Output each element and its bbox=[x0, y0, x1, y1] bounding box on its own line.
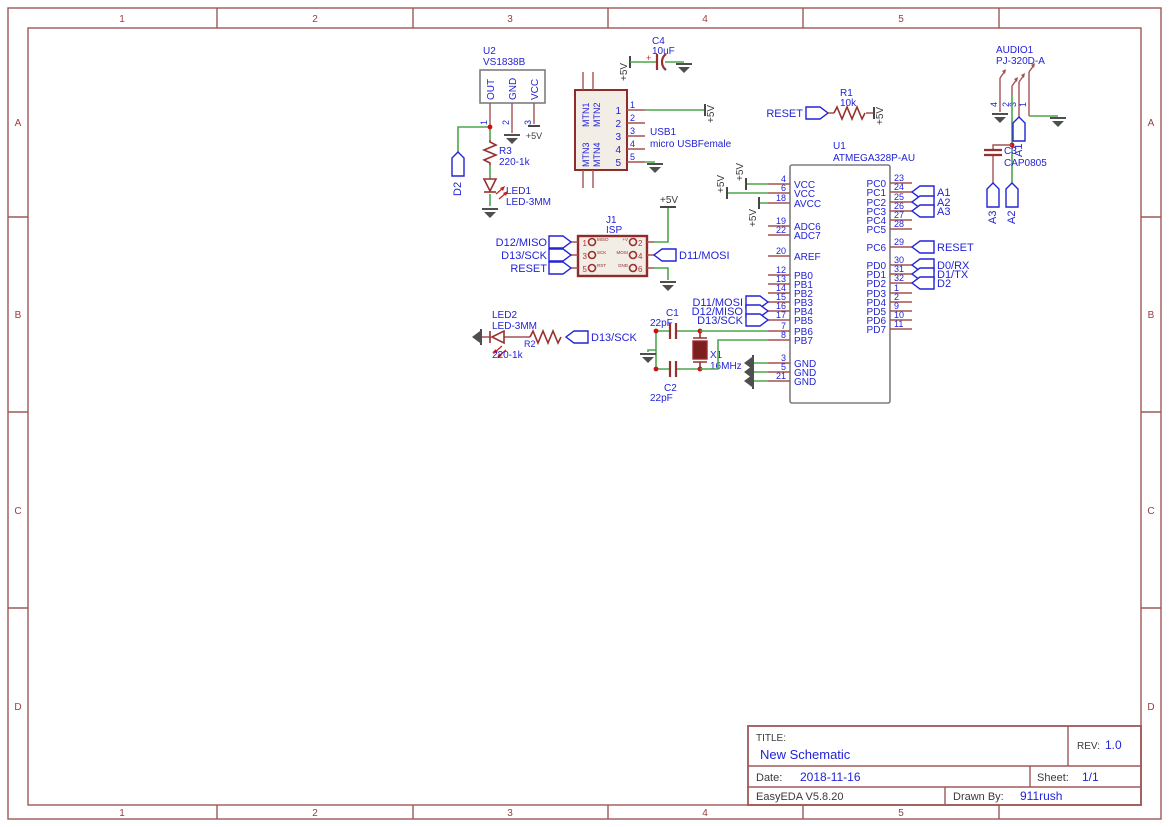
netflag-a3-u1[interactable] bbox=[912, 205, 934, 217]
software-version: EasyEDA V5.8.20 bbox=[756, 791, 843, 803]
usb1-mtn1: MTN1 bbox=[581, 103, 591, 128]
netflag-a1[interactable] bbox=[1013, 117, 1025, 141]
u1-pin-num: 28 bbox=[894, 219, 904, 229]
u2-ref[interactable]: U2 bbox=[483, 46, 496, 57]
component-u2-vs1838b[interactable]: U2 VS1838B OUT GND VCC 1 2 3 +5V bbox=[479, 46, 545, 144]
audio1-pin-3: 3 bbox=[1008, 102, 1018, 107]
gnd-icon bbox=[472, 329, 481, 345]
frame-col-top-5: 5 bbox=[898, 14, 904, 25]
usb1-pin-in-2: 2 bbox=[615, 119, 621, 130]
led1-value[interactable]: LED-3MM bbox=[506, 197, 551, 208]
netflag-d12miso[interactable] bbox=[549, 236, 571, 248]
date-label: Date: bbox=[756, 772, 782, 784]
frame-row-left-b: B bbox=[15, 310, 22, 321]
junction-dot bbox=[654, 329, 659, 334]
u1-pin-num: 21 bbox=[776, 371, 786, 381]
x1-value[interactable]: 16MHz bbox=[710, 361, 742, 372]
frame-row-right-b: B bbox=[1148, 310, 1155, 321]
gnd-icon bbox=[676, 64, 692, 73]
netflag-d11mosi-j1[interactable] bbox=[654, 249, 676, 261]
usb1-mtn2: MTN2 bbox=[592, 103, 602, 128]
rev-value[interactable]: 1.0 bbox=[1105, 738, 1122, 752]
drawn-by-value[interactable]: 911rush bbox=[1020, 789, 1062, 803]
u2-pin-num-1: 1 bbox=[479, 120, 489, 125]
usb1-pin-in-4: 4 bbox=[615, 145, 621, 156]
c4-polarity: + bbox=[646, 53, 651, 63]
usb1-mtn4: MTN4 bbox=[592, 143, 602, 168]
p5v-flag-j1[interactable]: +5V bbox=[660, 195, 678, 206]
netflag-reset[interactable] bbox=[806, 107, 828, 119]
netlabel-reset-j1[interactable]: RESET bbox=[510, 263, 547, 275]
netlabel-reset[interactable]: RESET bbox=[766, 108, 803, 120]
frame-row-left-d: D bbox=[14, 702, 21, 713]
netlabel-d2[interactable]: D2 bbox=[452, 182, 464, 196]
u1-pin-name: PB5 bbox=[794, 316, 813, 327]
usb1-pin-in-1: 1 bbox=[615, 106, 621, 117]
netflag-d13sck-u1[interactable] bbox=[746, 314, 768, 326]
netflag-d13sck[interactable] bbox=[549, 249, 571, 261]
component-audio1[interactable]: AUDIO1 PJ-320D-A 4 2 3 1 A1 A2 bbox=[989, 45, 1066, 224]
frame-col-bot-3: 3 bbox=[507, 808, 513, 819]
schematic-page: 1 2 3 4 5 1 2 3 4 5 A B C D A B C D TITL… bbox=[0, 0, 1169, 827]
netlabel-a2[interactable]: A2 bbox=[1006, 211, 1018, 224]
junction-dot bbox=[488, 125, 493, 130]
gnd-icon bbox=[647, 164, 663, 173]
audio1-value[interactable]: PJ-320D-A bbox=[996, 56, 1045, 67]
c2-value[interactable]: 22pF bbox=[650, 393, 673, 404]
component-j1-isp[interactable]: J1 ISP 1 3 5 2 4 6 MISO SCK RST +V MOSI … bbox=[496, 195, 730, 291]
r3-ref[interactable]: R3 bbox=[499, 146, 512, 157]
frame-row-right-d: D bbox=[1147, 702, 1154, 713]
u1-pin-name: AVCC bbox=[794, 199, 821, 210]
c3-value[interactable]: CAP0805 bbox=[1004, 158, 1047, 169]
netlabel-d13sck[interactable]: D13/SCK bbox=[501, 250, 548, 262]
netlabel-d13sck-led2[interactable]: D13/SCK bbox=[591, 332, 638, 344]
frame-row-left-c: C bbox=[14, 506, 21, 517]
netlabel-reset-u1[interactable]: RESET bbox=[937, 242, 974, 254]
p5v-flag-c4[interactable]: +5V bbox=[619, 63, 630, 81]
u2-pin-num-2: 2 bbox=[501, 120, 511, 125]
netflag-reset-u1[interactable] bbox=[912, 241, 934, 253]
drawn-by-label: Drawn By: bbox=[953, 791, 1004, 803]
x1-ref[interactable]: X1 bbox=[710, 350, 723, 361]
u1-pin-num: 22 bbox=[776, 225, 786, 235]
title-block[interactable]: TITLE: New Schematic REV: 1.0 Date: 2018… bbox=[748, 726, 1141, 805]
j1-name-sck: SCK bbox=[597, 250, 606, 255]
gnd-icon bbox=[504, 135, 520, 144]
r2-ref[interactable]: R2 bbox=[524, 339, 536, 349]
led2-value[interactable]: LED-3MM bbox=[492, 321, 537, 332]
frame-col-bot-5: 5 bbox=[898, 808, 904, 819]
usb1-mtn3: MTN3 bbox=[581, 143, 591, 168]
sheet-value[interactable]: 1/1 bbox=[1082, 770, 1099, 784]
usb1-pin-num-5: 5 bbox=[630, 152, 635, 162]
j1-name-v: +V bbox=[622, 237, 628, 242]
frame-col-bot-1: 1 bbox=[119, 808, 125, 819]
u1-pin-num: 32 bbox=[894, 273, 904, 283]
u2-pin-num-3: 3 bbox=[523, 120, 533, 125]
netlabel-a3[interactable]: A3 bbox=[987, 211, 999, 224]
u1-pin-num: 6 bbox=[781, 183, 786, 193]
usb1-pin-num-3: 3 bbox=[630, 126, 635, 136]
frame-col-top-4: 4 bbox=[702, 14, 708, 25]
u1-pin-num: 29 bbox=[894, 237, 904, 247]
p5v-flag-vcc4[interactable]: +5V bbox=[735, 163, 746, 181]
p5v-flag-vcc6[interactable]: +5V bbox=[716, 175, 727, 193]
p5v-flag-avcc[interactable]: +5V bbox=[748, 209, 759, 227]
u1-pin-num: 11 bbox=[894, 319, 903, 329]
p5v-flag-r1[interactable]: +5V bbox=[875, 107, 886, 125]
u1-pin-name: PC5 bbox=[867, 225, 887, 236]
u1-pin-num: 18 bbox=[776, 193, 786, 203]
netlabel-d13sck-u1[interactable]: D13/SCK bbox=[697, 315, 744, 327]
r2-value[interactable]: 220-1k bbox=[492, 350, 524, 361]
audio1-ref[interactable]: AUDIO1 bbox=[996, 45, 1034, 56]
netflag-reset-j1[interactable] bbox=[549, 262, 571, 274]
gnd-icon bbox=[482, 209, 498, 218]
j1-num-4: 4 bbox=[638, 252, 643, 261]
u1-pin-name: GND bbox=[794, 377, 816, 388]
frame-row-left-a: A bbox=[15, 118, 22, 129]
netflag-d2-u1[interactable] bbox=[912, 277, 934, 289]
j1-name-rst: RST bbox=[597, 263, 606, 268]
u1-pin-num: 17 bbox=[776, 310, 786, 320]
netflag-d2[interactable] bbox=[452, 152, 464, 176]
p5v-flag-u2[interactable]: +5V bbox=[526, 131, 542, 141]
u1-pin-num: 8 bbox=[781, 330, 786, 340]
j1-num-3: 3 bbox=[583, 252, 588, 261]
u1-pin-num: 24 bbox=[894, 182, 904, 192]
u2-pin-name-out: OUT bbox=[486, 79, 497, 100]
component-r1-reset[interactable]: RESET R1 10k +5V bbox=[766, 88, 886, 125]
component-r3[interactable]: R3 220-1k bbox=[484, 140, 531, 168]
frame-col-bot-2: 2 bbox=[312, 808, 318, 819]
netflag-a3[interactable] bbox=[987, 183, 999, 207]
j1-num-5: 5 bbox=[583, 265, 588, 274]
led1-ref[interactable]: LED1 bbox=[506, 186, 531, 197]
rev-label: REV: bbox=[1077, 741, 1100, 752]
u1-pin-name: AREF bbox=[794, 252, 821, 263]
j1-name-mosi: MOSI bbox=[616, 250, 628, 255]
p5v-flag-usb1[interactable]: +5V bbox=[706, 105, 717, 123]
j1-name-gnd: GND bbox=[618, 263, 629, 268]
netlabel-d2-u1[interactable]: D2 bbox=[937, 278, 951, 290]
u1-pin-name: PD7 bbox=[867, 325, 887, 336]
usb1-pin-in-3: 3 bbox=[615, 132, 621, 143]
audio1-pin-1: 1 bbox=[1018, 102, 1028, 107]
schematic-canvas[interactable]: 1 2 3 4 5 1 2 3 4 5 A B C D A B C D TITL… bbox=[0, 0, 1169, 827]
u1-pin-num: 20 bbox=[776, 246, 786, 256]
frame-row-right-a: A bbox=[1148, 118, 1155, 129]
u1-pin-name: PC6 bbox=[867, 243, 887, 254]
j1-num-6: 6 bbox=[638, 265, 643, 274]
component-usb1[interactable]: MTN1 MTN2 MTN3 MTN4 1 2 3 4 5 1 2 3 4 5 … bbox=[575, 72, 732, 188]
frame-col-bot-4: 4 bbox=[702, 808, 708, 819]
gnd-icon bbox=[992, 114, 1008, 123]
date-value[interactable]: 2018-11-16 bbox=[800, 770, 861, 784]
c3-ref[interactable]: C3 bbox=[1004, 146, 1017, 157]
u1-pin-name: PB7 bbox=[794, 336, 813, 347]
r3-value[interactable]: 220-1k bbox=[499, 157, 531, 168]
frame-row-right-c: C bbox=[1147, 506, 1154, 517]
sheet-label: Sheet: bbox=[1037, 772, 1069, 784]
usb1-pin-num-4: 4 bbox=[630, 139, 635, 149]
gnd-icon bbox=[640, 354, 656, 363]
j1-value[interactable]: ISP bbox=[606, 225, 622, 236]
netlabel-a3-u1[interactable]: A3 bbox=[937, 206, 950, 218]
frame-col-top-1: 1 bbox=[119, 14, 125, 25]
netflag-a2[interactable] bbox=[1006, 183, 1018, 207]
netflag-d13sck-led2[interactable] bbox=[566, 331, 588, 343]
netlabel-d11mosi-j1[interactable]: D11/MOSI bbox=[679, 250, 730, 262]
usb1-pin-num-2: 2 bbox=[630, 113, 635, 123]
gnd-icon bbox=[660, 282, 676, 291]
netlabel-d12miso[interactable]: D12/MISO bbox=[496, 237, 548, 249]
component-led2-r2[interactable]: LED2 LED-3MM R2 220-1k D13/SCK bbox=[472, 310, 638, 361]
frame-col-top-3: 3 bbox=[507, 14, 513, 25]
usb1-pin-num-1: 1 bbox=[630, 100, 635, 110]
u1-pin-name: ADC7 bbox=[794, 231, 821, 242]
j1-num-1: 1 bbox=[583, 239, 588, 248]
u1-value[interactable]: ATMEGA328P-AU bbox=[833, 153, 915, 164]
gnd-icon bbox=[1050, 118, 1066, 127]
u2-pin-name-gnd: GND bbox=[508, 78, 519, 100]
junction-dot bbox=[654, 367, 659, 372]
x1-crystal-icon bbox=[693, 341, 707, 359]
component-led1[interactable]: LED1 LED-3MM bbox=[482, 165, 551, 218]
frame-col-top-2: 2 bbox=[312, 14, 318, 25]
audio1-pin-4: 4 bbox=[989, 102, 999, 107]
gnd-icon bbox=[744, 373, 753, 389]
led1-diode-icon bbox=[484, 179, 496, 191]
audio1-contacts-icon bbox=[1000, 63, 1035, 117]
led2-diode-icon bbox=[492, 331, 504, 343]
usb1-pin-in-5: 5 bbox=[615, 158, 621, 169]
sheet-title[interactable]: New Schematic bbox=[760, 747, 851, 762]
u1-ref[interactable]: U1 bbox=[833, 141, 846, 152]
u2-pin-name-vcc: VCC bbox=[530, 79, 541, 100]
r1-value[interactable]: 10k bbox=[840, 98, 857, 109]
led2-ref[interactable]: LED2 bbox=[492, 310, 517, 321]
title-label: TITLE: bbox=[756, 733, 786, 744]
u2-value[interactable]: VS1838B bbox=[483, 57, 526, 68]
j1-name-miso: MISO bbox=[597, 237, 609, 242]
component-c4[interactable]: C4 10uF +5V + bbox=[619, 36, 692, 81]
usb1-ref[interactable]: USB1 bbox=[650, 127, 677, 138]
j1-num-2: 2 bbox=[638, 239, 643, 248]
usb1-value[interactable]: micro USBFemale bbox=[650, 139, 732, 150]
